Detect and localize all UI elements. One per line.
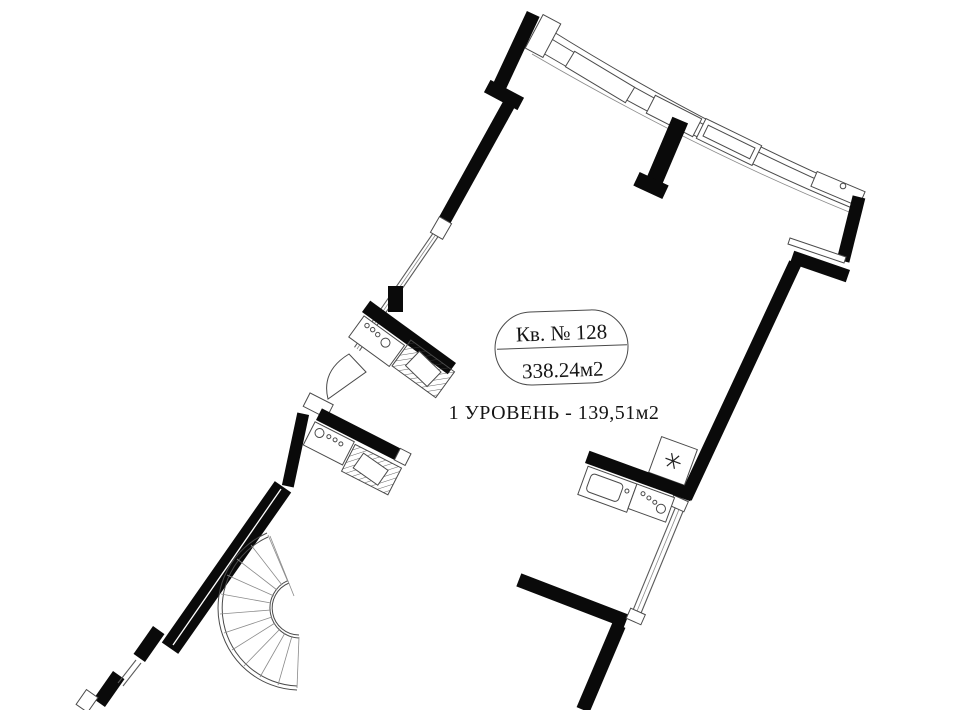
facade-curved-window-wall bbox=[532, 29, 865, 212]
apartment-area-text: 338.24м2 bbox=[522, 357, 604, 384]
kitchen-area bbox=[574, 415, 708, 531]
entry-door-swing bbox=[327, 354, 366, 399]
apartment-number-text: Кв. № 128 bbox=[516, 319, 608, 346]
partition-wall-b bbox=[301, 408, 411, 495]
right-exterior-wall bbox=[680, 195, 865, 500]
bottom-wall bbox=[516, 573, 628, 710]
floor-plan-canvas: Кв. № 128 338.24м2 1 УРОВЕНЬ - 139,51м2 bbox=[0, 0, 960, 710]
facade-pier bbox=[633, 117, 688, 199]
floor-plan-page: Кв. № 128 338.24м2 1 УРОВЕНЬ - 139,51м2 bbox=[0, 0, 960, 710]
left-exterior-wall bbox=[76, 11, 561, 710]
level-area-text: 1 УРОВЕНЬ - 139,51м2 bbox=[449, 402, 660, 424]
window-jamb bbox=[76, 690, 98, 710]
apartment-label: Кв. № 128 338.24м2 bbox=[494, 309, 629, 387]
partition-wall-a bbox=[346, 286, 460, 399]
facade-panel bbox=[565, 51, 634, 102]
